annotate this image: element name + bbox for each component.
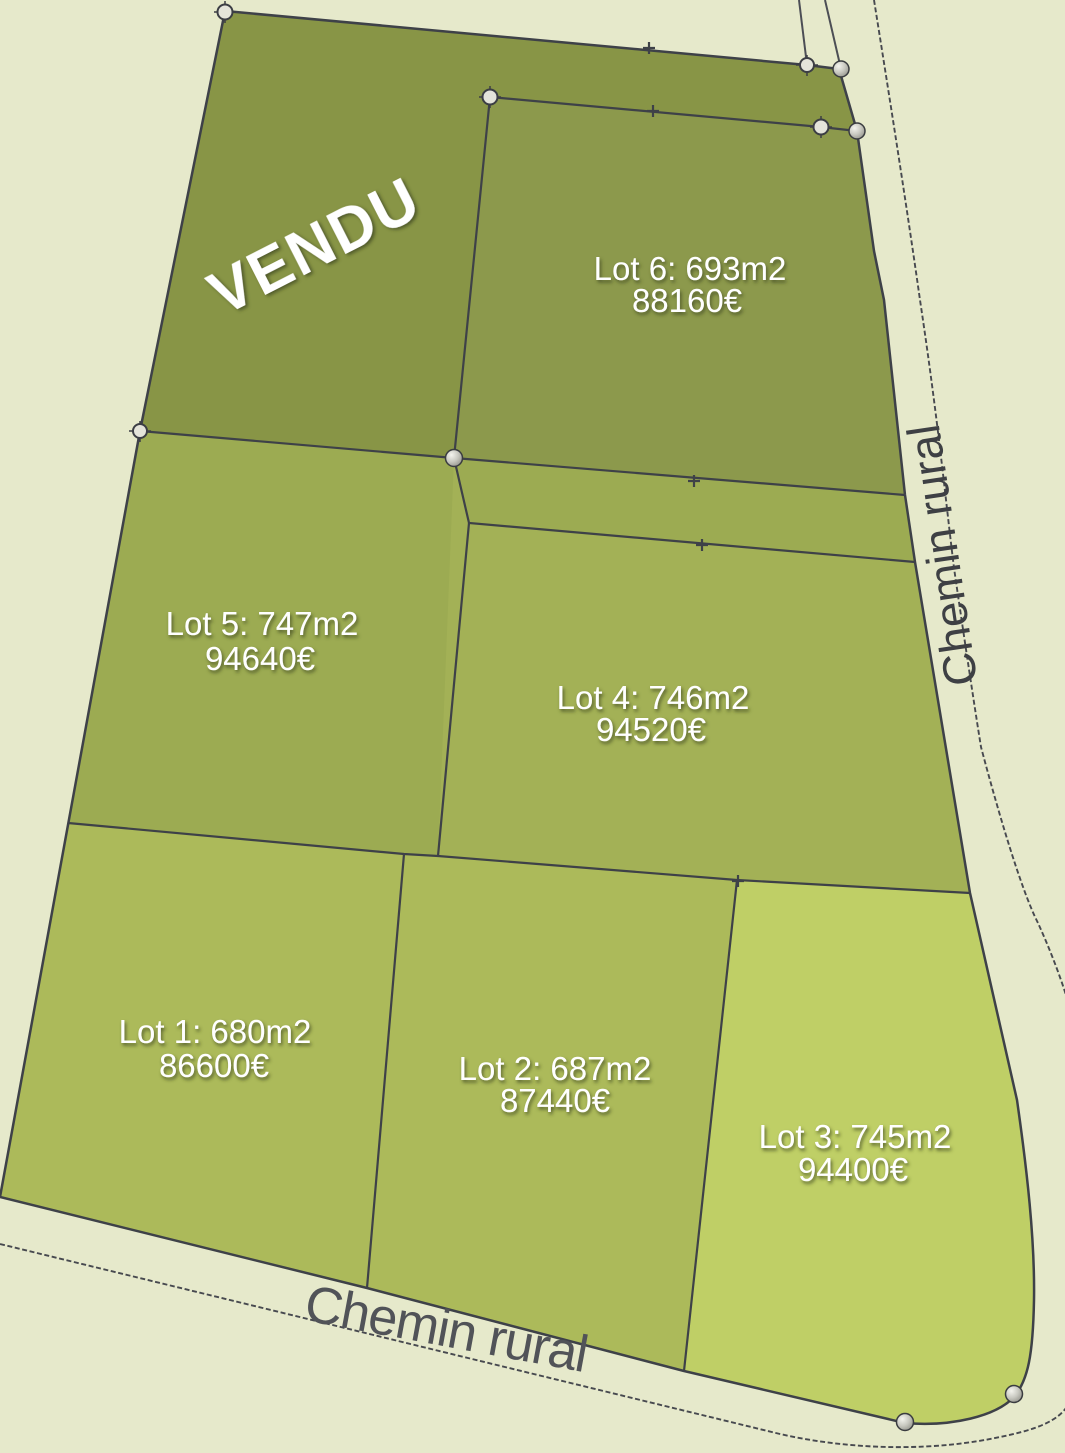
- svg-text:94640€: 94640€: [205, 640, 315, 677]
- svg-text:86600€: 86600€: [159, 1047, 269, 1084]
- svg-text:Lot 3: 745m2: Lot 3: 745m2: [759, 1118, 952, 1155]
- svg-text:94520€: 94520€: [596, 711, 706, 748]
- svg-text:88160€: 88160€: [632, 282, 742, 319]
- svg-text:87440€: 87440€: [500, 1082, 610, 1119]
- svg-text:94400€: 94400€: [798, 1151, 908, 1188]
- svg-text:Lot 1: 680m2: Lot 1: 680m2: [119, 1013, 312, 1050]
- svg-text:Lot 5: 747m2: Lot 5: 747m2: [166, 605, 359, 642]
